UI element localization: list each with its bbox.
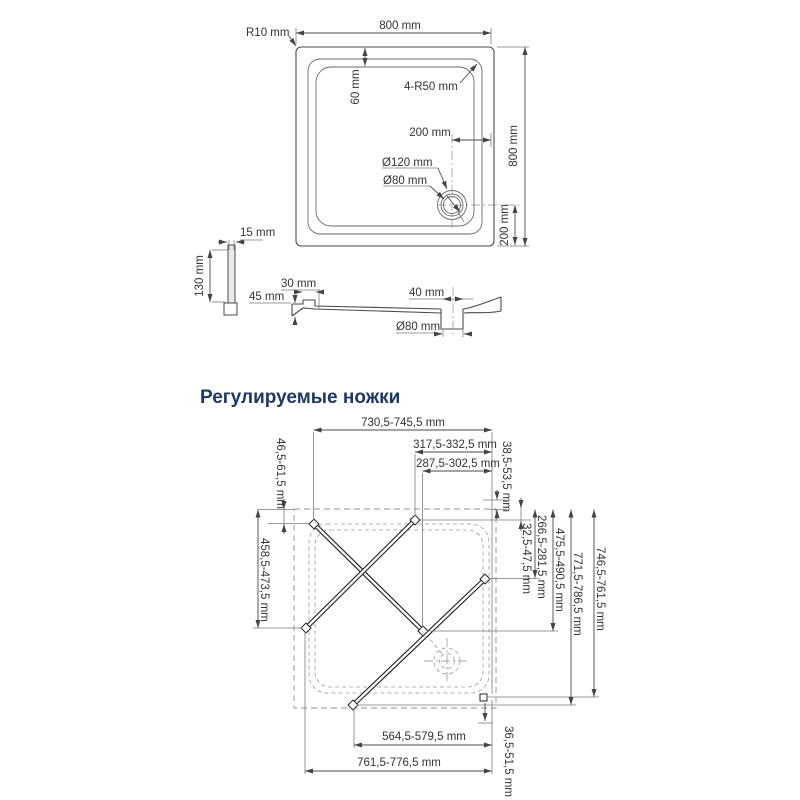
dim-corner-radius-label: R10 mm: [246, 27, 289, 39]
leg-dim-right-span-4: 746,5-761,5 mm: [594, 547, 606, 631]
dim-top-width-label: 800 mm: [379, 20, 421, 32]
leg-dim-right-span-2: 475,5-490,5 mm: [553, 528, 565, 612]
dim-drain-x-label: 200 mm: [409, 127, 451, 139]
section-drain-boss: [441, 309, 463, 329]
dim-thickness-label: 15 mm: [240, 227, 275, 239]
dim-drain-y-label: 200 mm: [499, 204, 511, 246]
leg-dim-bottom-span-inner: 564,5-579,5 mm: [382, 731, 466, 743]
leg-dim-right-offset-small: 32,5-47,5 mm: [520, 523, 532, 594]
leg-dim-bottom-span: 761,5-776,5 mm: [357, 757, 441, 769]
section-heading: Регулируемые ножки: [200, 387, 400, 408]
dim-drain-offset-label: 40 mm: [409, 287, 444, 299]
tray-outer-edge: [296, 47, 494, 246]
leg-dim-bottom-right-offset: 36,5-51,5 mm: [502, 726, 514, 797]
leg-dim-top-right-offset: 38,5-53,5 mm: [500, 441, 512, 512]
shower-tray-drawing: 800 mm R10 mm 800 mm 60 mm 4-R50 mm 200 …: [0, 0, 800, 800]
leg-dim-top-span: 730,5-745,5 mm: [361, 417, 445, 429]
section-bottom-left: [292, 308, 441, 316]
drain-fitting-foot: [480, 694, 487, 701]
leg-dim-top-span-mid: 317,5-332,5 mm: [413, 439, 497, 451]
side-view-section: 30 mm 45 mm 40 mm Ø80 mm: [249, 278, 501, 337]
technical-drawing-page: 800 mm R10 mm 800 mm 60 mm 4-R50 mm 200 …: [0, 0, 800, 800]
dim-inner-radius-label: 4-R50 mm: [404, 81, 458, 93]
leg-dim-right-span-1: 266,5-281,5 mm: [535, 515, 547, 599]
drain-bottom-view: [424, 634, 470, 684]
wall-foot: [224, 303, 237, 315]
dim-section-drain-label: Ø80 mm: [396, 321, 440, 333]
section-top-edge: [292, 300, 441, 309]
section-bottom-right: [464, 311, 501, 313]
leg-dim-top-left-offset: 46,5-61,5 mm: [274, 438, 286, 509]
leg-bars: [301, 515, 490, 710]
top-view: 800 mm R10 mm 800 mm 60 mm 4-R50 mm 200 …: [246, 20, 529, 246]
legs-view: 730,5-745,5 mm 317,5-332,5 mm 287,5-302,…: [253, 417, 606, 797]
dim-right-height-label: 800 mm: [508, 125, 520, 167]
leg-dim-right-span-3: 771,5-786,5 mm: [571, 552, 583, 636]
drain-inner-label: Ø80 mm: [383, 175, 427, 187]
leg-dim-top-span-inner: 287,5-302,5 mm: [416, 458, 500, 470]
extension-lines: [253, 432, 599, 774]
dim-rim-label: 60 mm: [350, 69, 362, 104]
dim-height-label: 130 mm: [194, 255, 206, 297]
leg-dim-left-span: 458,5-473,5 mm: [258, 538, 270, 622]
dim-edge-height-label: 45 mm: [249, 291, 284, 303]
dim-ledge-label: 30 mm: [281, 278, 316, 290]
wall-profile: [228, 245, 235, 303]
drain-outer-label: Ø120 mm: [382, 157, 433, 169]
